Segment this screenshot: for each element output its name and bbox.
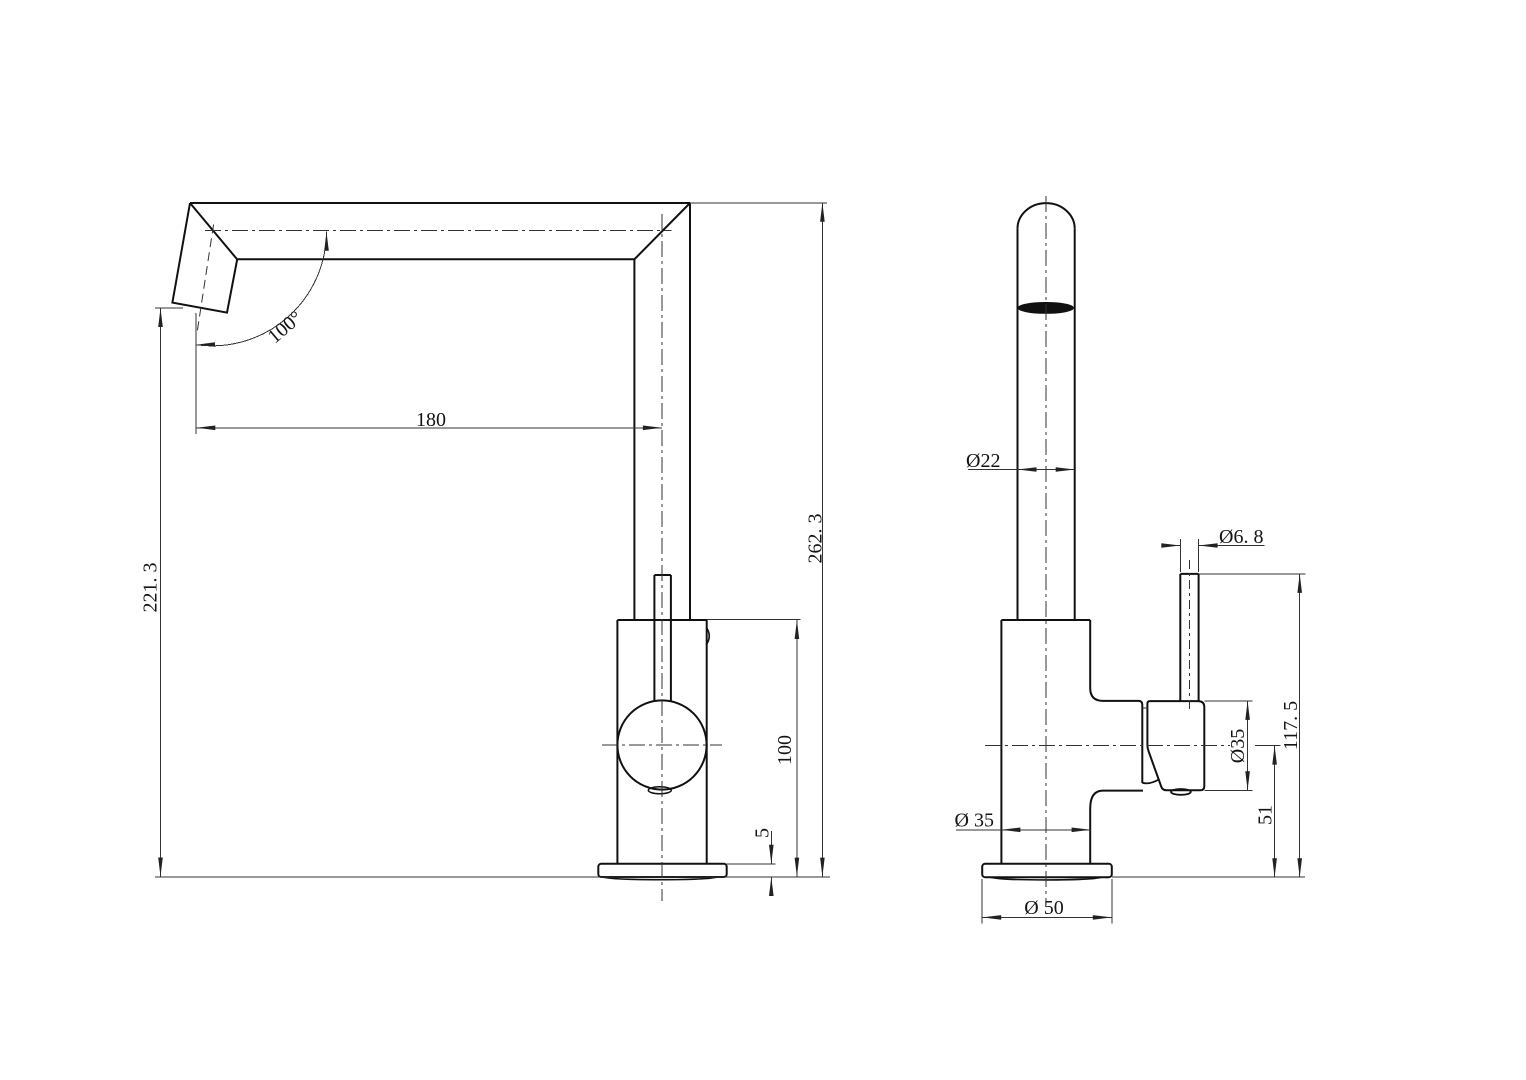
- svg-text:5: 5: [752, 828, 774, 838]
- svg-text:180: 180: [416, 409, 446, 431]
- svg-text:262. 3: 262. 3: [805, 514, 827, 564]
- svg-text:Ø 50: Ø 50: [1024, 897, 1063, 919]
- svg-text:Ø 35: Ø 35: [955, 810, 994, 832]
- svg-text:221. 3: 221. 3: [140, 563, 162, 613]
- svg-text:117. 5: 117. 5: [1280, 701, 1302, 750]
- svg-text:100°: 100°: [264, 307, 307, 348]
- svg-text:Ø35: Ø35: [1227, 729, 1249, 763]
- svg-text:Ø6. 8: Ø6. 8: [1219, 526, 1263, 548]
- svg-text:51: 51: [1255, 805, 1277, 825]
- svg-text:Ø22: Ø22: [966, 450, 1000, 472]
- svg-text:100: 100: [774, 735, 796, 765]
